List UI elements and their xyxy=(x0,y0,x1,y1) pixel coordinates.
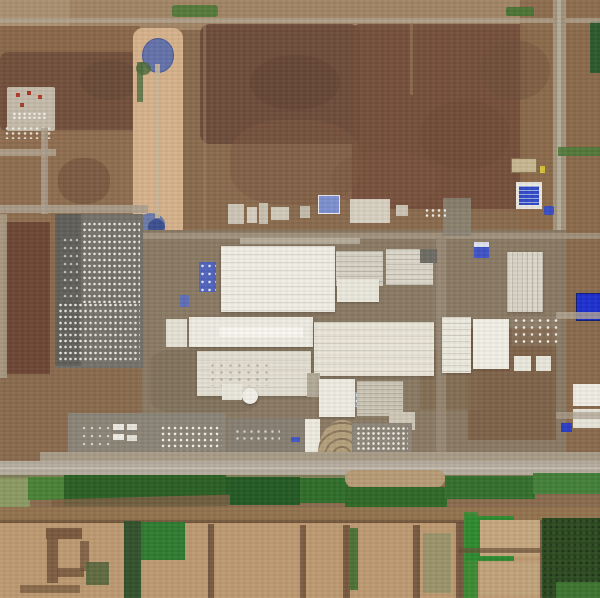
warehouse-e2 xyxy=(473,319,509,369)
crop-field-6 xyxy=(445,476,535,499)
mottle-blob-2 xyxy=(420,100,510,170)
divider-1 xyxy=(208,524,214,598)
blue-object-w xyxy=(180,295,189,307)
yellow-object xyxy=(540,166,545,173)
green-edge-s xyxy=(350,528,358,590)
annex-bld-6 xyxy=(350,199,390,223)
hall-a-annex xyxy=(337,279,379,302)
hall-b-west xyxy=(166,319,187,347)
hedge-v-1 xyxy=(124,521,141,598)
annex-blue-cluster xyxy=(318,195,340,214)
parked-cars-s2 xyxy=(234,428,280,442)
green-strip-n xyxy=(506,7,534,16)
crop-field-4 xyxy=(300,478,348,503)
parked-cars-s3 xyxy=(356,426,408,452)
mottle-blob-3 xyxy=(80,60,140,100)
crop-field-7 xyxy=(533,473,600,494)
storage-tank xyxy=(242,388,258,404)
annex-bld-4 xyxy=(271,207,289,220)
green-strip-e xyxy=(558,147,600,156)
white-bld-e1 xyxy=(573,384,600,406)
crop-field-5 xyxy=(345,487,447,507)
road-se-h xyxy=(556,412,600,419)
blue-small-e xyxy=(561,423,572,432)
annex-bld-5 xyxy=(300,206,310,218)
crop-field-1 xyxy=(28,477,64,500)
track-pond-green xyxy=(136,62,151,75)
crop-field-3 xyxy=(226,477,300,505)
parked-cars-b xyxy=(58,302,140,362)
highway-centerline xyxy=(0,467,600,469)
utility-bld-s xyxy=(222,384,242,400)
tan-plot-se-2 xyxy=(480,562,540,596)
container-grid xyxy=(512,317,558,346)
green-field-ne xyxy=(590,21,600,73)
road-w-h xyxy=(0,205,148,213)
annex-bld-3 xyxy=(259,203,268,224)
striped-warehouse-ne xyxy=(507,252,543,312)
boundary-line-v1 xyxy=(203,0,206,230)
compound-red-bld-3 xyxy=(38,95,42,99)
small-bld-e2 xyxy=(536,356,551,371)
parked-cars-s0 xyxy=(80,424,110,448)
solar-array-panels xyxy=(519,186,539,205)
white-bld-s xyxy=(319,379,355,417)
truck-sw-2 xyxy=(127,424,137,430)
hall-d-marks xyxy=(208,362,274,386)
green-square-sw xyxy=(86,562,109,585)
gravel-pad-ne xyxy=(443,198,471,236)
striped-bld-s xyxy=(357,381,403,416)
road-nw-v xyxy=(41,128,48,214)
mottle-blob-1 xyxy=(250,55,340,110)
divider-2 xyxy=(300,525,306,598)
annex-bld-1 xyxy=(228,204,244,224)
compound-red-bld-1 xyxy=(16,93,20,97)
trench-1 xyxy=(46,528,82,539)
divider-h-se xyxy=(458,548,544,553)
truck-dock-blue xyxy=(199,262,216,292)
parked-cars-c xyxy=(62,236,78,300)
field-strip-w-dark xyxy=(6,222,50,374)
track-road xyxy=(155,64,160,218)
vehicles-ne xyxy=(424,208,446,218)
field-bright-sw xyxy=(141,522,185,560)
compound-nw xyxy=(7,87,55,131)
green-strip-se xyxy=(556,582,600,598)
road-top xyxy=(0,18,600,23)
satellite-image xyxy=(0,0,600,598)
olive-plot-s xyxy=(423,533,451,593)
shed-ne-tan xyxy=(511,158,537,173)
truck-sw-1 xyxy=(113,424,124,430)
crop-field-0 xyxy=(0,478,30,510)
perimeter-road-s xyxy=(40,452,600,461)
parked-cars-s1 xyxy=(160,425,222,451)
mottle-blob-5 xyxy=(480,40,550,100)
road-e-h xyxy=(556,312,600,319)
hall-b-stripe xyxy=(219,327,303,337)
assembly-hall-c xyxy=(314,322,434,376)
tan-patch-s xyxy=(345,470,445,487)
campus-road-top xyxy=(142,233,600,239)
truck-sw-4 xyxy=(127,435,137,441)
mottle-blob-6 xyxy=(230,120,360,205)
roofline-row-n xyxy=(240,238,360,244)
blue-object-ne xyxy=(544,206,554,215)
divider-4 xyxy=(413,525,420,598)
boundary-line-v2 xyxy=(410,0,413,95)
compound-red-bld-2 xyxy=(27,91,31,95)
trench-5 xyxy=(20,585,80,593)
divider-5 xyxy=(456,522,464,598)
compound-red-bld-4 xyxy=(20,103,24,107)
blue-dash-s xyxy=(291,437,300,442)
blue-roof-bld-top xyxy=(474,242,489,247)
warehouse-e1 xyxy=(442,317,471,373)
truck-sw-3 xyxy=(113,434,124,440)
green-strip-nw xyxy=(172,5,218,17)
annex-bld-2 xyxy=(247,207,257,223)
divider-3 xyxy=(343,525,350,598)
road-w-edge xyxy=(0,214,7,378)
dirt-mound-w xyxy=(58,158,110,204)
annex-bld-7 xyxy=(396,205,408,216)
small-bld-e1 xyxy=(514,356,531,371)
parked-cars-a xyxy=(82,221,140,303)
dark-bld-ne xyxy=(420,249,437,263)
compound-vehicles xyxy=(12,112,48,119)
assembly-hall-a xyxy=(221,246,335,312)
